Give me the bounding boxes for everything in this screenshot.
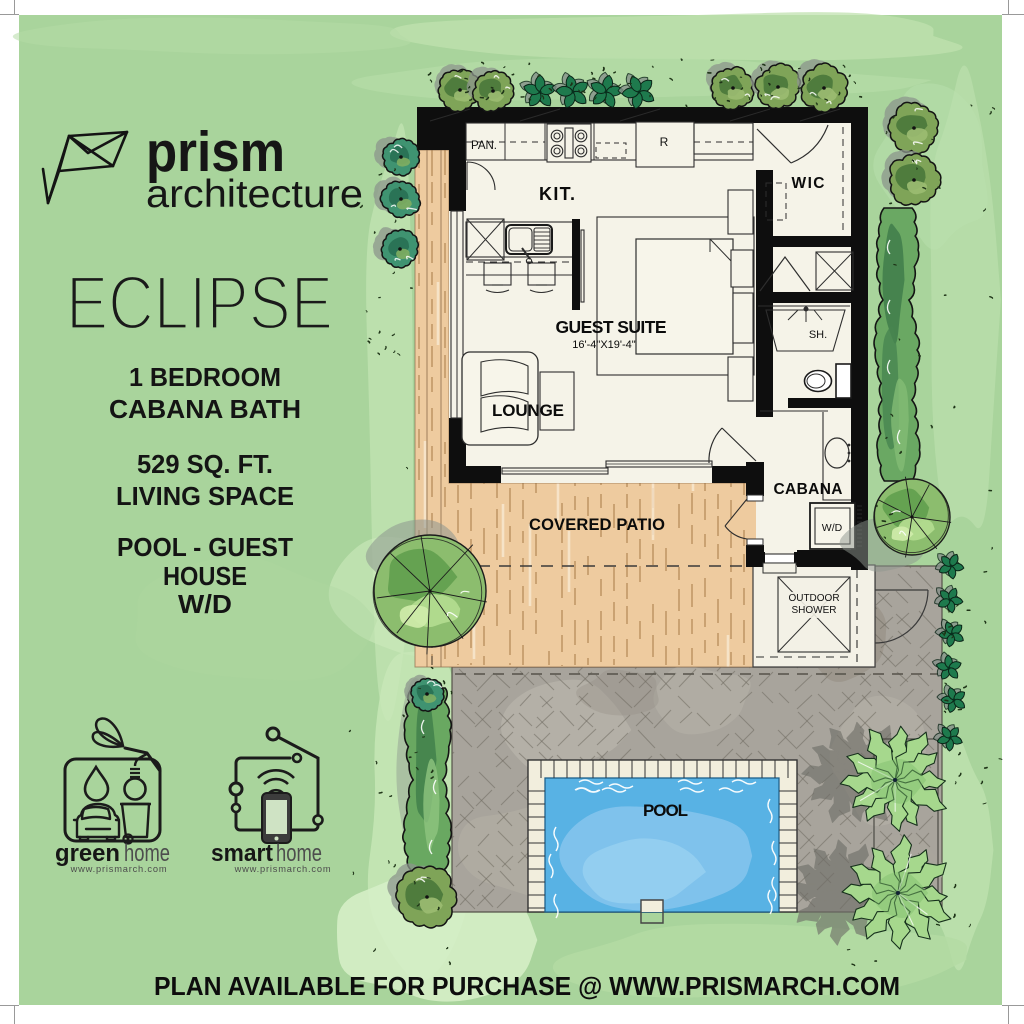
svg-text:POOL: POOL <box>643 801 689 820</box>
svg-text:WIC: WIC <box>792 175 825 192</box>
svg-text:OUTDOOR: OUTDOOR <box>788 593 839 604</box>
svg-text:CABANA BATH: CABANA BATH <box>109 394 301 424</box>
svg-text:PLAN AVAILABLE FOR PURCHASE @: PLAN AVAILABLE FOR PURCHASE @ WWW.PRISMA… <box>154 971 900 1001</box>
svg-text:home: home <box>276 840 322 867</box>
svg-text:W/D: W/D <box>822 522 843 534</box>
svg-text:www.prismarch.com: www.prismarch.com <box>234 864 332 874</box>
svg-text:LIVING SPACE: LIVING SPACE <box>116 481 294 511</box>
svg-text:POOL - GUEST: POOL - GUEST <box>117 532 293 562</box>
svg-text:ECLIPSE: ECLIPSE <box>66 261 333 346</box>
svg-text:1 BEDROOM: 1 BEDROOM <box>129 362 281 392</box>
svg-text:green: green <box>55 840 120 867</box>
svg-text:529 SQ. FT.: 529 SQ. FT. <box>137 449 273 479</box>
svg-text:KIT.: KIT. <box>539 184 575 204</box>
svg-text:SH.: SH. <box>809 329 827 341</box>
svg-text:HOUSE: HOUSE <box>163 561 247 591</box>
svg-text:www.prismarch.com: www.prismarch.com <box>70 864 168 874</box>
svg-text:CABANA: CABANA <box>774 481 843 498</box>
svg-text:PAN.: PAN. <box>471 140 497 152</box>
svg-text:home: home <box>124 840 170 867</box>
svg-text:LOUNGE: LOUNGE <box>492 401 564 420</box>
svg-text:GUEST SUITE: GUEST SUITE <box>556 317 667 337</box>
svg-text:COVERED PATIO: COVERED PATIO <box>529 516 665 534</box>
svg-text:W/D: W/D <box>178 589 232 619</box>
svg-text:SHOWER: SHOWER <box>792 605 837 616</box>
svg-text:R: R <box>660 135 669 149</box>
svg-text:architecture: architecture <box>146 173 363 216</box>
svg-text:smart: smart <box>211 840 273 867</box>
svg-text:16'-4"X19'-4": 16'-4"X19'-4" <box>572 339 635 351</box>
